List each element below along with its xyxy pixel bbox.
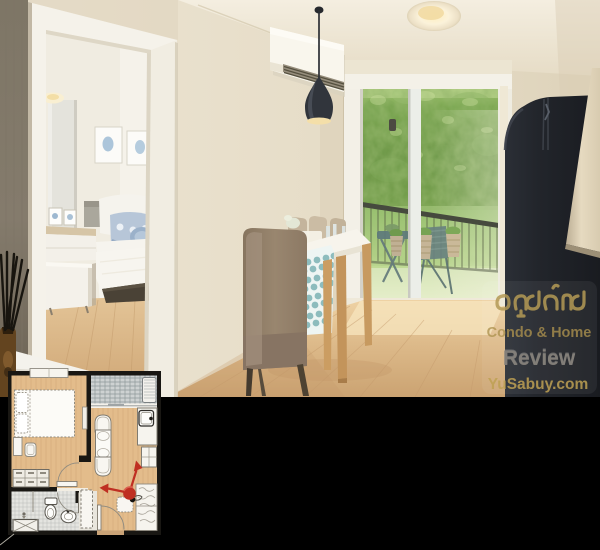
svg-text:Review: Review	[503, 347, 576, 370]
svg-text:Condo & Home: Condo & Home	[487, 325, 592, 341]
svg-text:YuSabuy.com: YuSabuy.com	[488, 376, 589, 393]
